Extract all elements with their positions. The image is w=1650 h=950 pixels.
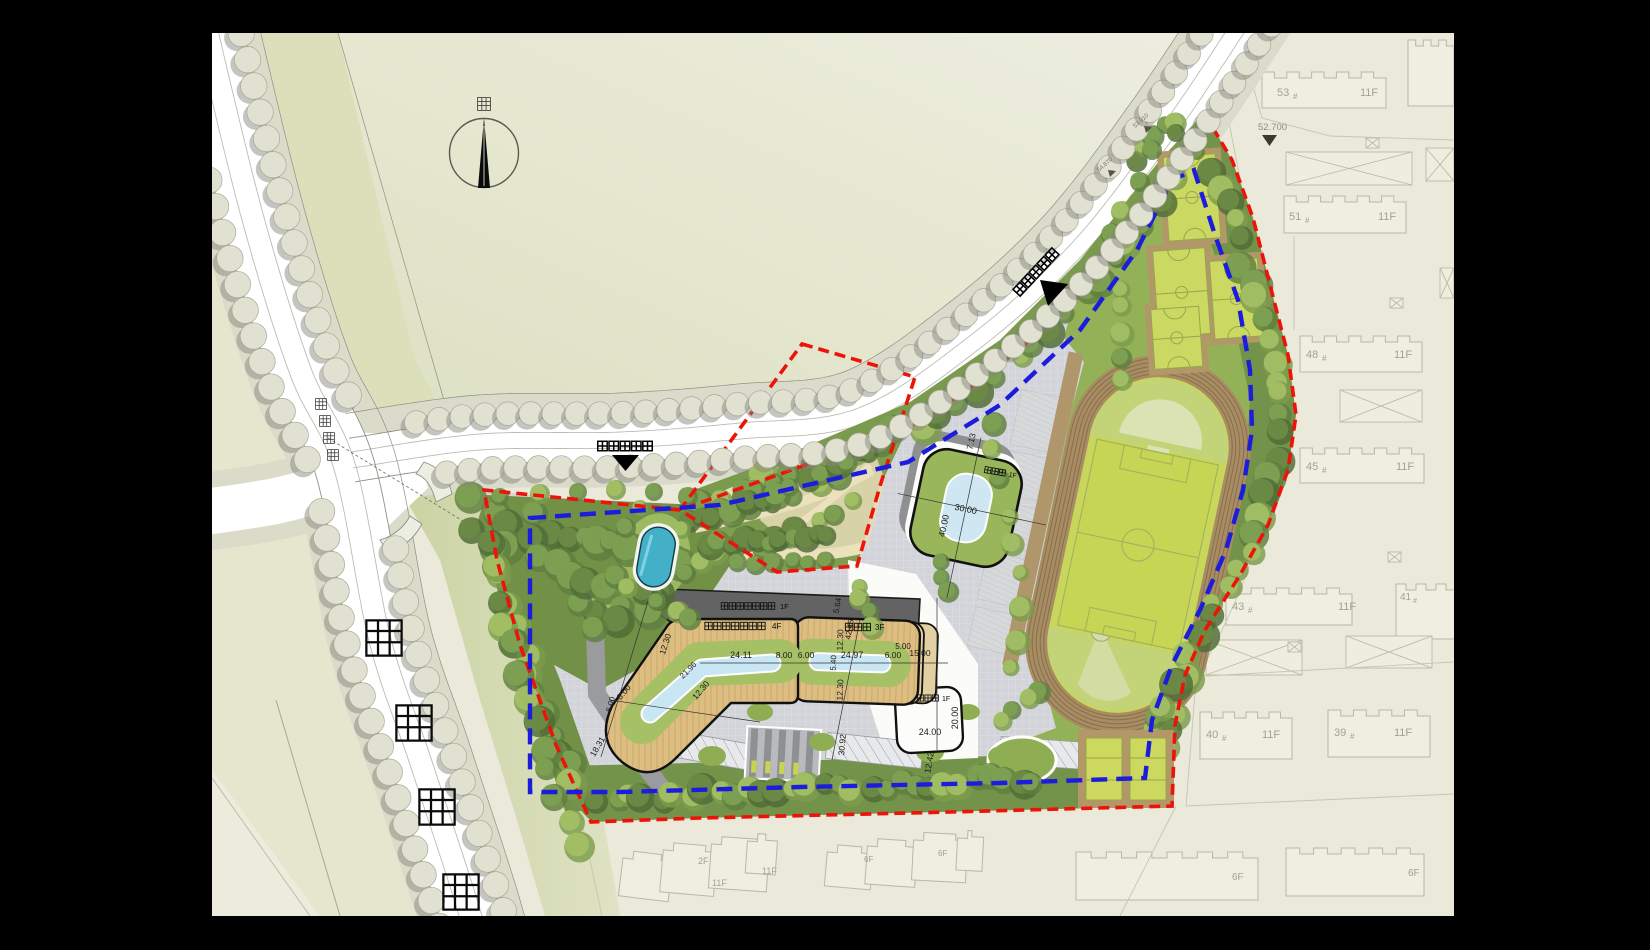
svg-text:#: # <box>1322 466 1327 475</box>
svg-text:6.00: 6.00 <box>798 650 815 660</box>
svg-text:15.00: 15.00 <box>909 648 931 658</box>
svg-text:#: # <box>1305 216 1310 225</box>
svg-text:6F: 6F <box>864 855 873 864</box>
svg-text:#: # <box>1248 606 1253 615</box>
svg-text:3F: 3F <box>875 623 884 632</box>
svg-text:5.40: 5.40 <box>829 654 839 670</box>
svg-text:#: # <box>1350 732 1355 741</box>
svg-text:45: 45 <box>1306 461 1318 473</box>
svg-text:6F: 6F <box>1232 872 1244 883</box>
svg-text:5.00: 5.00 <box>895 642 911 651</box>
svg-text:#: # <box>1293 92 1298 101</box>
svg-text:6.00: 6.00 <box>885 650 902 660</box>
svg-text:1F: 1F <box>780 602 789 611</box>
svg-text:11F: 11F <box>1394 349 1412 361</box>
svg-text:11F: 11F <box>1360 87 1378 99</box>
svg-text:8.00: 8.00 <box>776 650 793 660</box>
svg-text:11F: 11F <box>762 866 777 876</box>
svg-text:40: 40 <box>1206 729 1218 741</box>
svg-text:#: # <box>1322 354 1327 363</box>
svg-text:1F: 1F <box>942 696 950 703</box>
svg-text:30.92: 30.92 <box>836 733 848 755</box>
svg-text:20.00: 20.00 <box>950 707 960 730</box>
svg-text:11F: 11F <box>1262 729 1280 741</box>
svg-text:#: # <box>1222 734 1227 743</box>
svg-text:11F: 11F <box>712 878 727 888</box>
svg-text:52.700: 52.700 <box>1258 122 1287 133</box>
svg-text:12.30: 12.30 <box>835 679 846 701</box>
svg-text:39: 39 <box>1334 727 1346 739</box>
svg-text:6F: 6F <box>938 849 947 858</box>
svg-text:11F: 11F <box>1338 601 1356 613</box>
svg-text:1F: 1F <box>1008 472 1017 480</box>
svg-text:4F: 4F <box>772 622 781 631</box>
svg-text:53: 53 <box>1277 87 1289 99</box>
svg-text:#: # <box>1413 598 1417 605</box>
svg-text:24.11: 24.11 <box>730 650 752 660</box>
svg-text:48: 48 <box>1306 349 1318 361</box>
svg-text:11F: 11F <box>1396 461 1414 473</box>
svg-text:41: 41 <box>1400 592 1412 603</box>
svg-text:11F: 11F <box>1394 727 1412 739</box>
svg-text:43: 43 <box>1232 601 1244 613</box>
svg-text:11F: 11F <box>1378 211 1396 223</box>
svg-text:51: 51 <box>1289 211 1301 223</box>
svg-text:6F: 6F <box>1408 868 1420 879</box>
svg-text:2F: 2F <box>698 856 709 866</box>
svg-text:24.00: 24.00 <box>919 727 942 737</box>
